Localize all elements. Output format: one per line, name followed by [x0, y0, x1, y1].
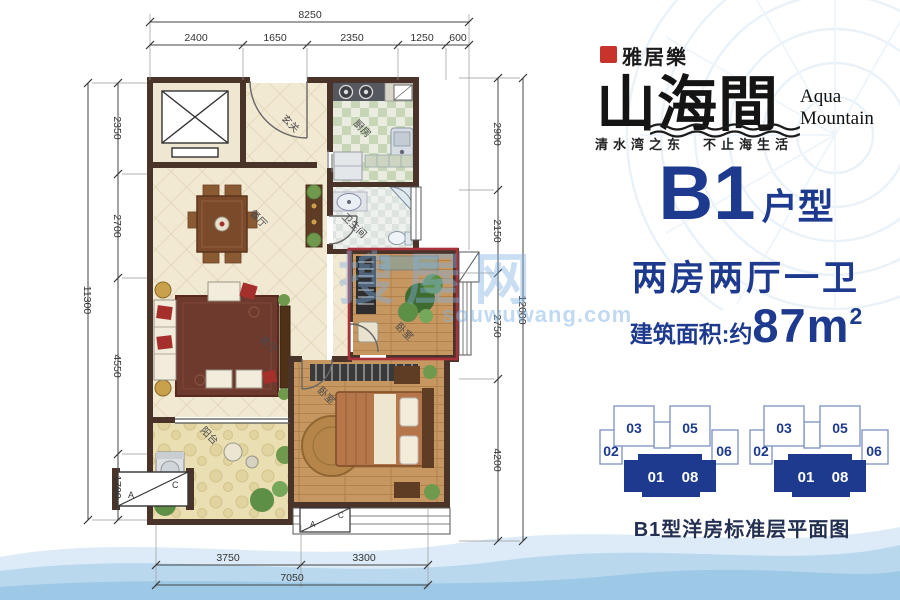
dim-left-seg2: 2700	[111, 214, 123, 238]
dim-top-seg4: 1250	[410, 32, 434, 44]
keyplan-unit-06: 06	[866, 443, 882, 459]
dim-left-seg1: 2350	[111, 116, 123, 140]
dim-right-seg3: 2750	[491, 314, 503, 338]
keyplan-unit-08: 08	[832, 469, 849, 486]
dim-right-seg2: 2150	[491, 219, 503, 243]
floorplan-poster: A C A C 玄关	[0, 0, 900, 600]
dim-left-total: 11300	[81, 286, 93, 315]
unit-code-suffix: 户型	[762, 186, 834, 227]
dim-top-seg1: 2400	[184, 32, 208, 44]
dim-left-seg3: 4550	[111, 354, 123, 378]
keyplan-unit-01: 01	[648, 469, 665, 486]
keyplan-building-2: 03 05 02 06 01 08	[750, 406, 888, 497]
floor-plan: A C A C 玄关	[0, 0, 570, 600]
dim-top-seg2: 1650	[263, 32, 287, 44]
keyplan-unit-05: 05	[682, 420, 698, 436]
keyplan-unit-02: 02	[603, 443, 619, 459]
dim-top-seg5: 600	[449, 32, 467, 44]
keyplan-building-1: 03 05 02 06 01 08	[600, 406, 738, 497]
dim-right-total: 12000	[516, 295, 528, 324]
unit-title: B1户型	[600, 156, 892, 232]
area-superscript: 2	[849, 303, 862, 329]
dim-left-seg4: 1700	[111, 475, 123, 499]
dim-bottom-seg2: 3300	[352, 552, 376, 564]
brand-name-english: Aqua Mountain	[800, 86, 874, 130]
keyplan-diagram: 03 05 02 06 01 08 03 05 02 06	[596, 396, 892, 508]
dim-top-seg3: 2350	[340, 32, 364, 44]
dim-right-seg4: 4200	[491, 448, 503, 472]
ac-label-c: C	[172, 480, 179, 490]
keyplan-caption: B1型洋房标准层平面图	[592, 513, 892, 542]
ac-platform-bedroom: A C	[300, 508, 350, 532]
keyplan-unit-08: 08	[682, 469, 699, 486]
unit-code: B1	[658, 151, 755, 236]
dim-bottom-total: 7050	[280, 572, 304, 584]
unit-layout: 两房两厅一卫	[600, 250, 892, 301]
keyplan-unit-01: 01	[798, 469, 815, 486]
brand-logo: 雅居樂 山海間 Aqua Mountain 清水湾之东 不止海生活	[592, 34, 892, 154]
unit-area: 建筑面积:约87m2	[600, 298, 892, 353]
ac-label-a: A	[310, 520, 316, 529]
keyplan-unit-06: 06	[716, 443, 732, 459]
keyplan-unit-03: 03	[626, 420, 642, 436]
dim-bottom-seg1: 3750	[216, 552, 240, 564]
area-value: 87m	[752, 299, 849, 352]
ac-platform-balcony: A C	[112, 468, 194, 510]
area-prefix: 建筑面积:约	[630, 321, 753, 347]
dim-right-seg1: 2900	[491, 122, 503, 146]
ac-label-c: C	[338, 511, 344, 520]
keyplan-unit-05: 05	[832, 420, 848, 436]
ac-label-a: A	[128, 490, 134, 500]
dim-top-total: 8250	[298, 9, 322, 21]
keyplan-unit-03: 03	[776, 420, 792, 436]
keyplan-unit-02: 02	[753, 443, 769, 459]
